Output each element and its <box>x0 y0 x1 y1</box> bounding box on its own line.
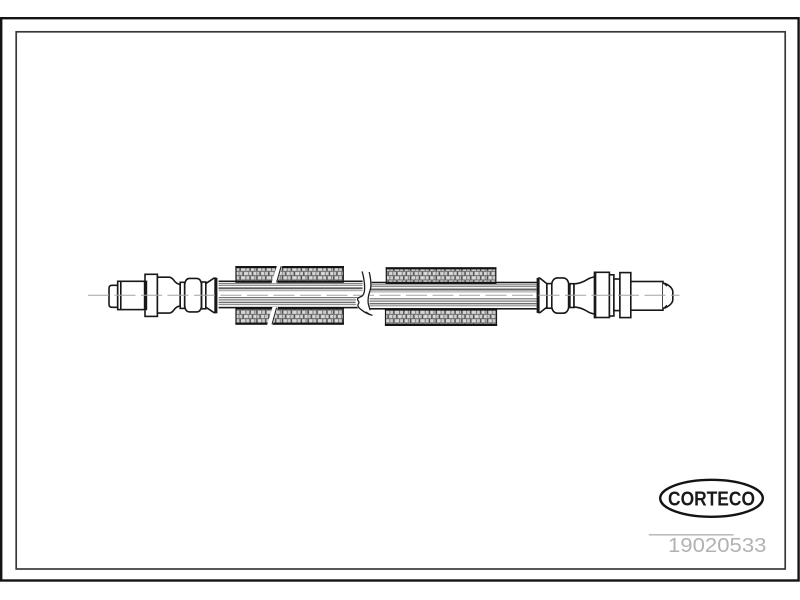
svg-text:19020533: 19020533 <box>668 534 767 557</box>
svg-text:CORTECO: CORTECO <box>668 488 755 511</box>
